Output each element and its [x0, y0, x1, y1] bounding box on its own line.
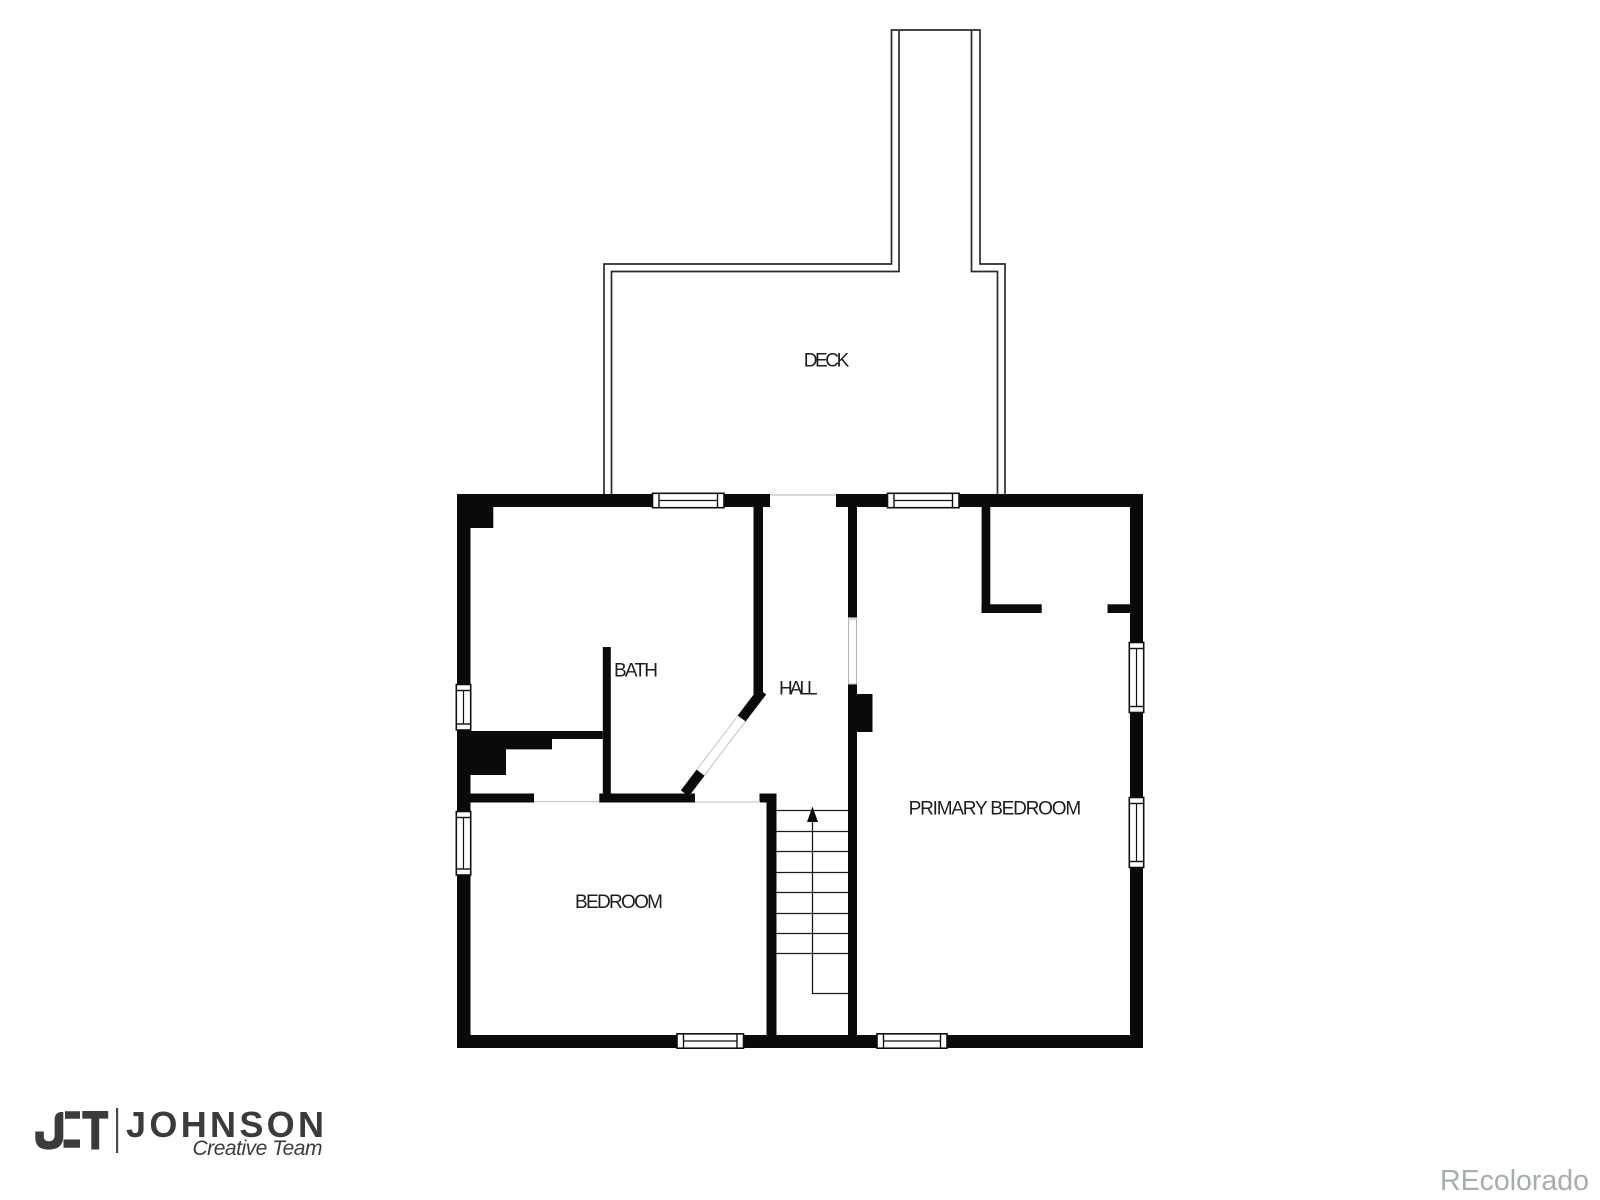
svg-text:HALL: HALL	[779, 679, 818, 700]
svg-text:PRIMARY BEDROOM: PRIMARY BEDROOM	[909, 798, 1082, 819]
svg-text:REcolorado: REcolorado	[1440, 1165, 1589, 1197]
svg-text:BEDROOM: BEDROOM	[575, 892, 663, 913]
svg-text:Creative Team: Creative Team	[193, 1137, 323, 1160]
svg-text:DECK: DECK	[804, 351, 850, 372]
svg-text:BATH: BATH	[614, 661, 658, 682]
